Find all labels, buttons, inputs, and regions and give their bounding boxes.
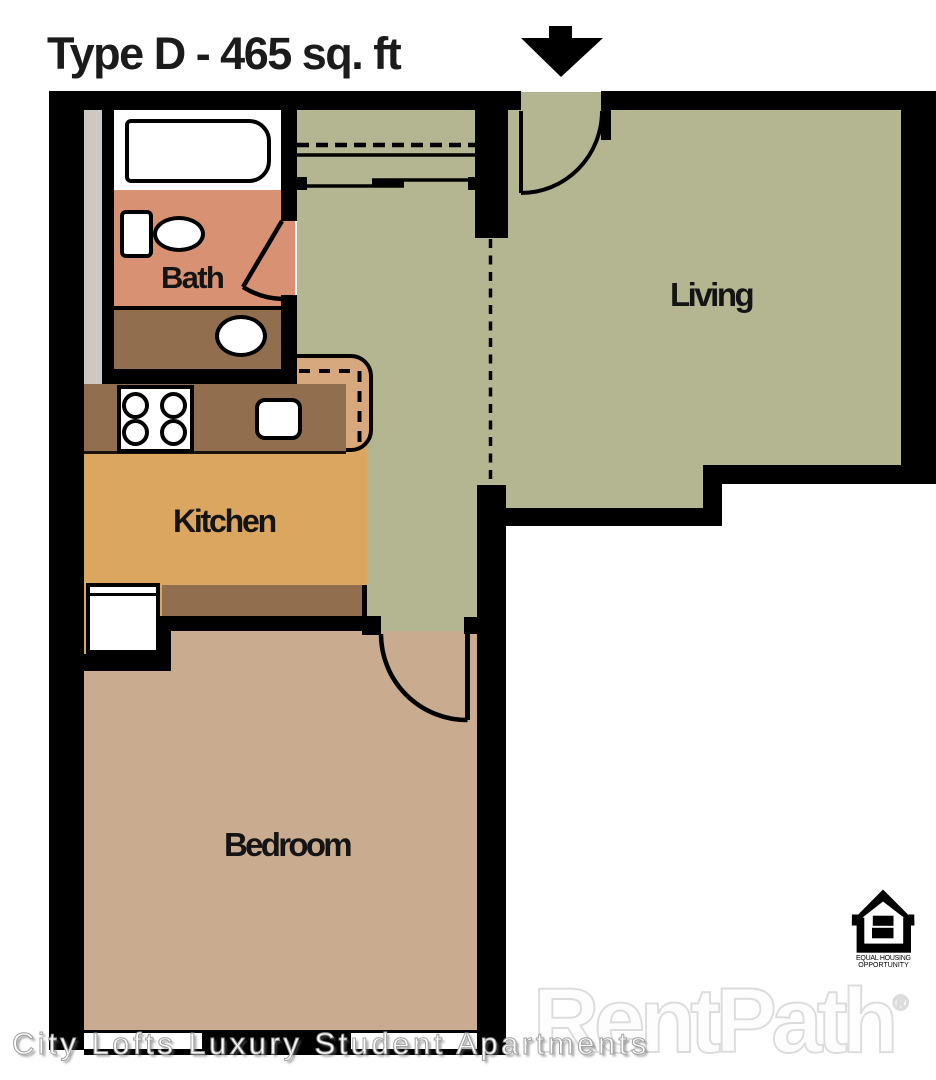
svg-text:EQUAL HOUSING: EQUAL HOUSING [856, 955, 911, 962]
svg-text:OPPORTUNITY: OPPORTUNITY [858, 962, 909, 969]
